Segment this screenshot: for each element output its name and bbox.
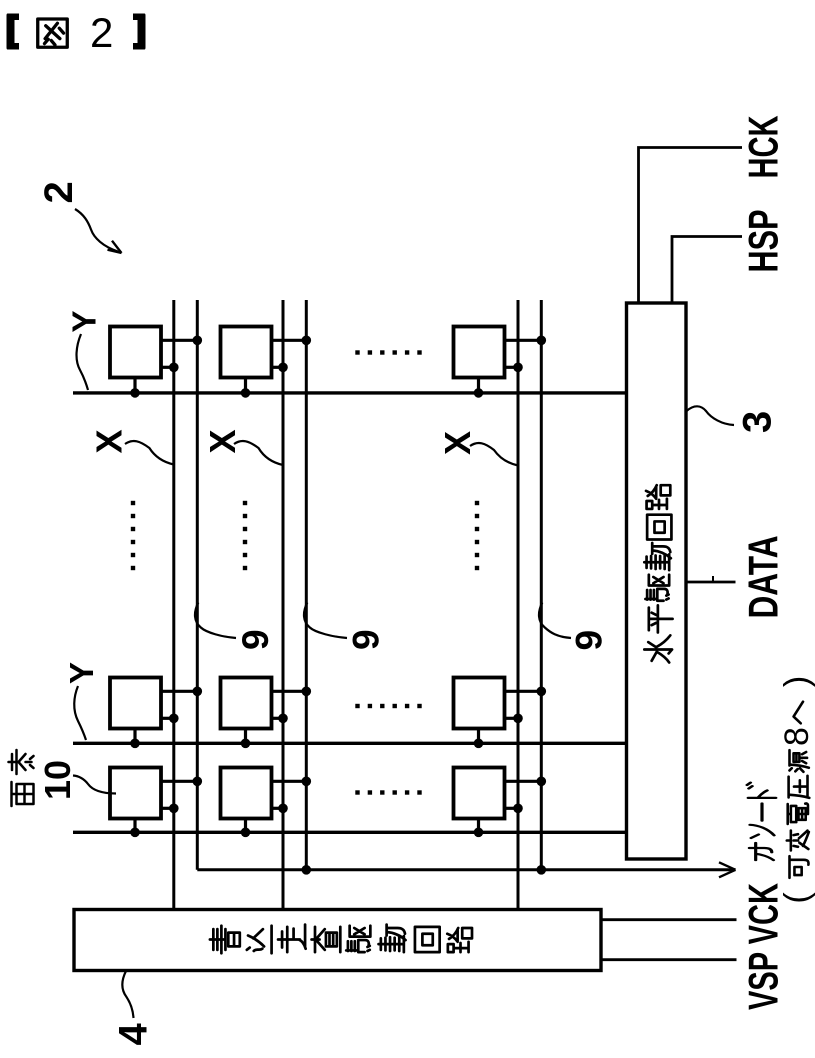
svg-text:X: X [202, 429, 243, 453]
svg-text:X: X [89, 429, 130, 453]
svg-text:Y: Y [63, 662, 100, 684]
svg-text:X: X [437, 431, 478, 455]
svg-text:9: 9 [346, 629, 387, 650]
svg-text:HCK: HCK [740, 116, 787, 179]
svg-text:Y: Y [66, 310, 103, 332]
svg-text:(: ( [778, 892, 815, 904]
svg-text:): ) [778, 676, 815, 687]
svg-text:4: 4 [112, 1023, 156, 1046]
svg-text:2: 2 [90, 9, 113, 56]
svg-text:3: 3 [736, 411, 780, 433]
svg-text:HSP: HSP [740, 210, 787, 273]
svg-text:8: 8 [778, 727, 815, 746]
svg-text:10: 10 [37, 760, 78, 800]
svg-text:9: 9 [569, 630, 610, 651]
svg-text:9: 9 [235, 629, 276, 650]
svg-text:DATA: DATA [740, 536, 787, 619]
svg-text:2: 2 [37, 181, 81, 203]
